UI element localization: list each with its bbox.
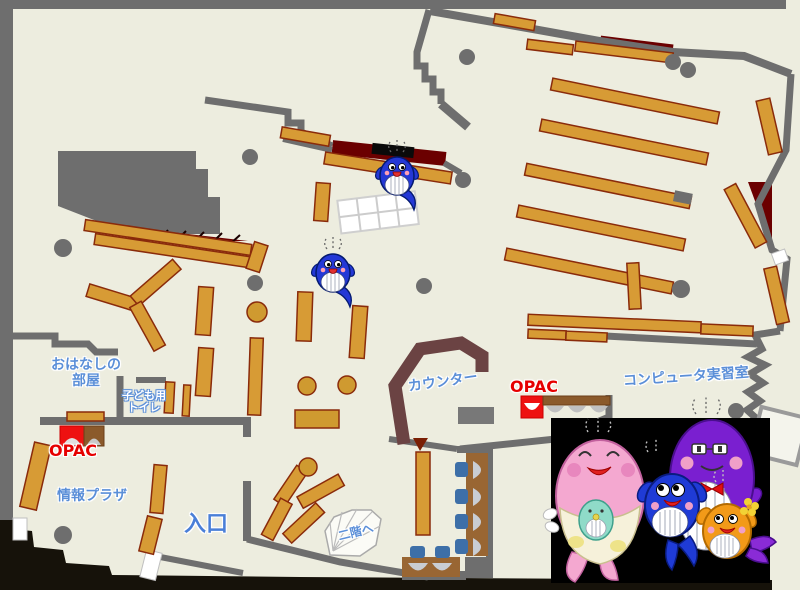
door-left bbox=[13, 518, 27, 540]
label-storytelling-room-line1: おはなしの bbox=[51, 357, 121, 373]
label-kids-toilet: 子ども用 トイレ bbox=[116, 390, 172, 415]
library-floor-map: おはなしの 部屋 子ども用 トイレ OPAC 情報プラザ 入口 カウンター OP… bbox=[0, 0, 800, 590]
label-storytelling-room: おはなしの 部屋 bbox=[40, 358, 132, 389]
label-storytelling-room-line2: 部屋 bbox=[72, 373, 100, 389]
label-opac-right: OPAC bbox=[510, 378, 558, 396]
mascot-family-photo bbox=[542, 397, 776, 583]
label-kids-toilet-line2: トイレ bbox=[128, 401, 161, 414]
label-info-plaza: 情報プラザ bbox=[57, 489, 127, 505]
label-entrance: 入口 bbox=[184, 513, 228, 538]
label-opac-left: OPAC bbox=[49, 442, 97, 460]
